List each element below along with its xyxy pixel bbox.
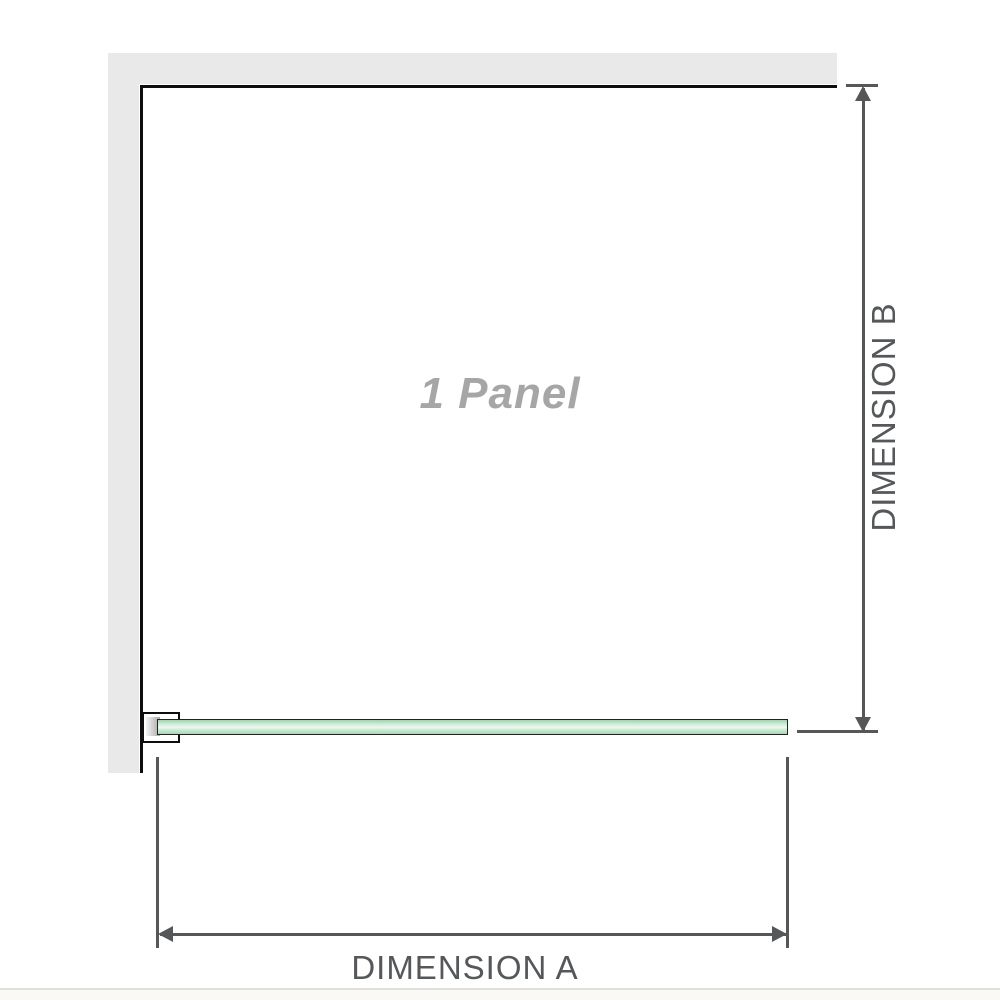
arrow-right-icon xyxy=(772,926,787,942)
footer-background-strip xyxy=(0,990,1000,1000)
dimension-a-right-extension-line xyxy=(786,757,789,948)
panel-count-label: 1 Panel xyxy=(419,369,580,419)
panel-dimension-diagram: 1 Panel DIMENSION B DIMENSION A xyxy=(0,0,1000,1000)
glass-panel-bar xyxy=(157,719,788,735)
arrow-up-icon xyxy=(855,86,871,101)
dimension-a-left-extension-line xyxy=(156,757,159,948)
wall-top-strip xyxy=(108,53,837,84)
dimension-b-label: DIMENSION B xyxy=(865,302,903,531)
arrow-left-icon xyxy=(158,926,173,942)
dimension-a-label: DIMENSION A xyxy=(351,949,578,987)
arrow-down-icon xyxy=(855,717,871,732)
panel-left-edge-line xyxy=(140,85,143,773)
panel-top-edge-line xyxy=(140,85,837,88)
wall-left-strip xyxy=(108,53,139,773)
dimension-a-line xyxy=(160,933,786,936)
